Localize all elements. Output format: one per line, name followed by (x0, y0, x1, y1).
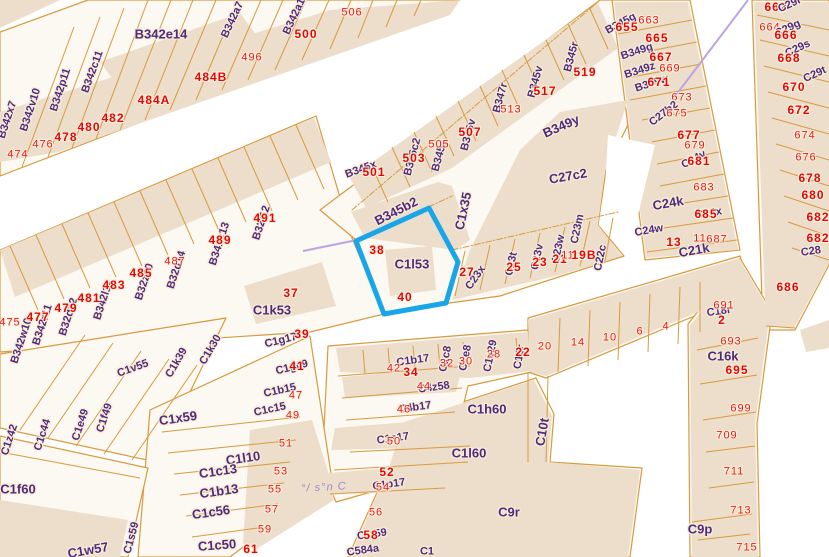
map-canvas[interactable]: B342x7B342v10B342p11B342c11B342e14B342a7… (0, 0, 829, 557)
map-base (0, 0, 829, 557)
